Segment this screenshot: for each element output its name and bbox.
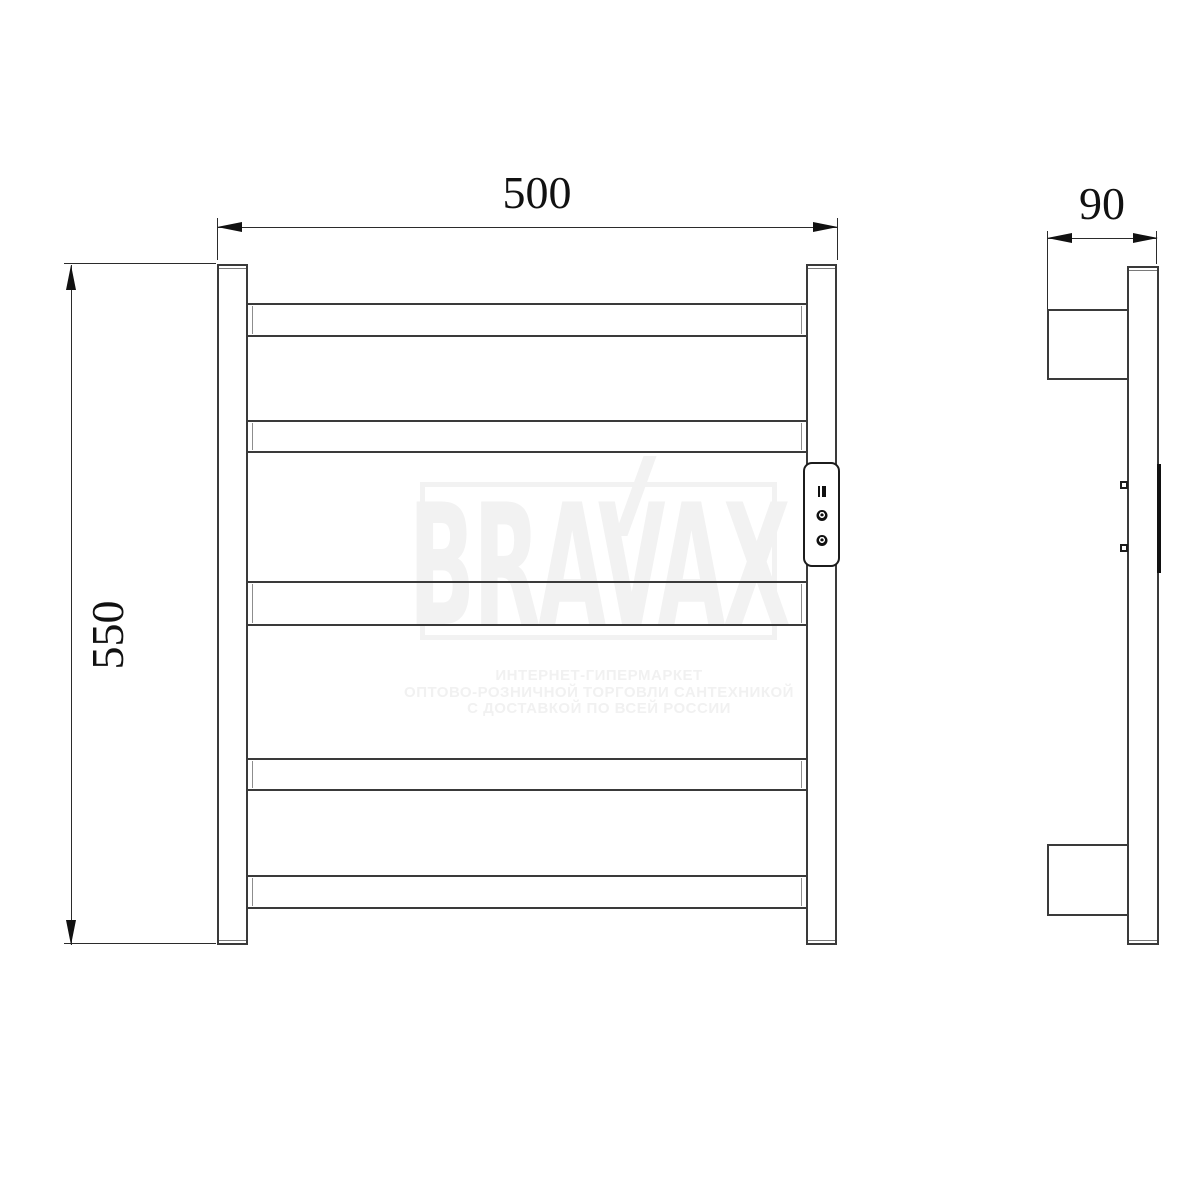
technical-drawing-canvas: BRAVAX ИНТЕРНЕТ-ГИПЕРМАРКЕТ ОПТОВО-РОЗНИ… bbox=[0, 0, 1200, 1200]
knob-icon bbox=[816, 535, 827, 546]
control-panel bbox=[803, 462, 840, 567]
towel-bar bbox=[248, 758, 806, 791]
towel-bar bbox=[248, 581, 806, 626]
side-view-panel-edge bbox=[1157, 464, 1161, 573]
height-dimension-value: 550 bbox=[85, 555, 131, 715]
side-view-bottom-wall-bracket bbox=[1047, 844, 1129, 916]
side-view-mount-tab bbox=[1120, 481, 1128, 489]
front-view-left-post bbox=[217, 264, 248, 945]
arrowhead-left-icon bbox=[1047, 233, 1072, 243]
width-dimension-line bbox=[217, 227, 838, 228]
towel-bar bbox=[248, 875, 806, 909]
side-view-post bbox=[1127, 266, 1159, 945]
front-view-right-post bbox=[806, 264, 837, 945]
towel-bar bbox=[248, 420, 806, 453]
watermark-tagline: ИНТЕРНЕТ-ГИПЕРМАРКЕТ ОПТОВО-РОЗНИЧНОЙ ТО… bbox=[398, 668, 800, 718]
side-view-top-wall-bracket bbox=[1047, 309, 1129, 380]
arrowhead-left-icon bbox=[217, 222, 242, 232]
tagline-line-1: ИНТЕРНЕТ-ГИПЕРМАРКЕТ bbox=[398, 668, 800, 685]
height-extension-line-bottom bbox=[64, 943, 216, 944]
height-extension-line-top bbox=[64, 263, 216, 264]
arrowhead-right-icon bbox=[1133, 233, 1158, 243]
arrowhead-down-icon bbox=[66, 920, 76, 945]
tagline-line-2: ОПТОВО-РОЗНИЧНОЙ ТОРГОВЛИ САНТЕХНИКОЙ bbox=[398, 685, 800, 702]
height-dimension-line bbox=[71, 265, 72, 945]
arrowhead-up-icon bbox=[66, 265, 76, 290]
tagline-line-3: С ДОСТАВКОЙ ПО ВСЕЙ РОССИИ bbox=[398, 701, 800, 718]
arrowhead-right-icon bbox=[813, 222, 838, 232]
width-dimension-value: 500 bbox=[452, 170, 622, 216]
knob-icon bbox=[816, 510, 827, 521]
display-icon bbox=[818, 486, 826, 497]
side-view-mount-tab bbox=[1120, 544, 1128, 552]
depth-dimension-value: 90 bbox=[1042, 181, 1162, 227]
towel-bar bbox=[248, 303, 806, 337]
